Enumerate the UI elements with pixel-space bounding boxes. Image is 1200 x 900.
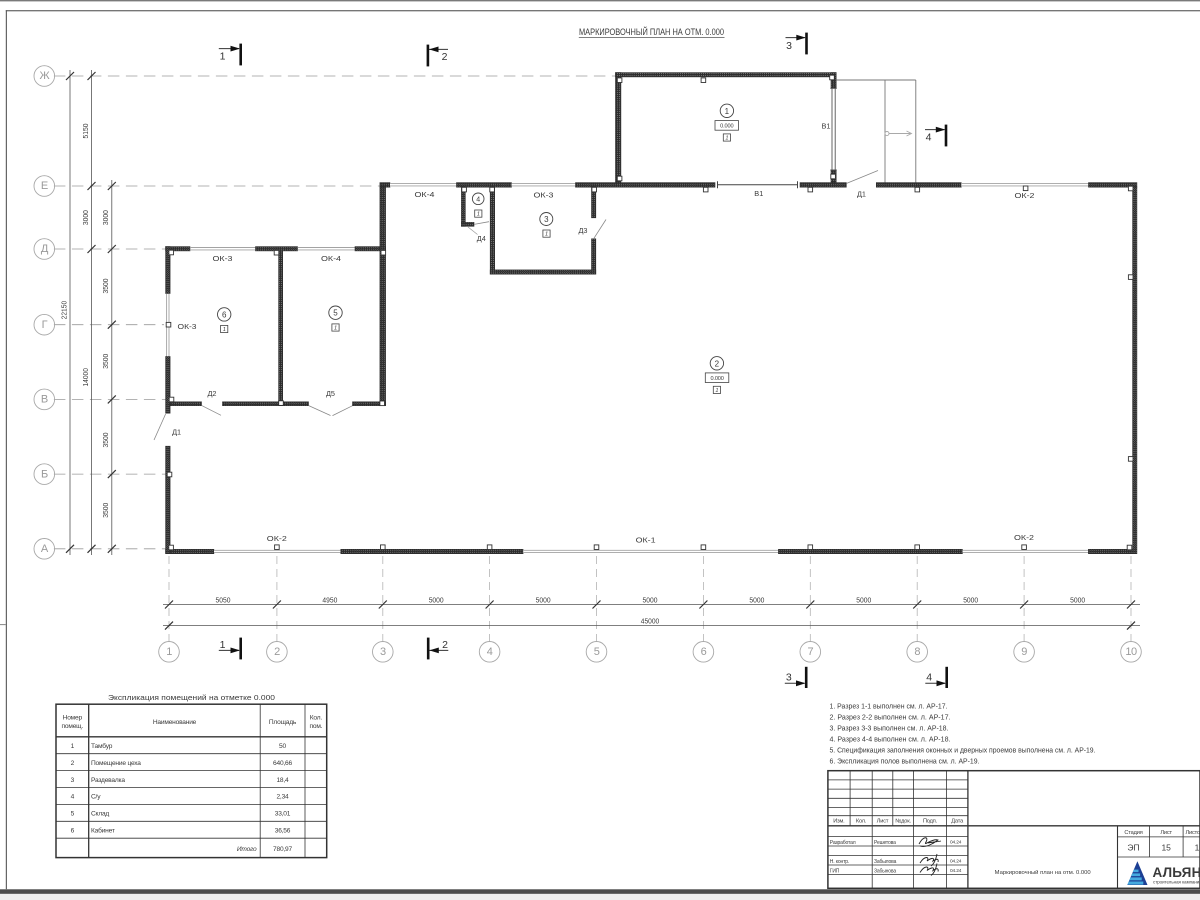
svg-text:Е: Е xyxy=(41,180,48,192)
svg-text:Н. контр.: Н. контр. xyxy=(830,859,849,865)
svg-text:1: 1 xyxy=(725,136,728,142)
svg-text:Раздевалка: Раздевалка xyxy=(91,777,125,784)
svg-text:6. Экспликация полов выполнена: 6. Экспликация полов выполнена см. л. АР… xyxy=(830,758,980,765)
svg-text:2: 2 xyxy=(442,639,448,651)
svg-text:1: 1 xyxy=(220,639,226,651)
svg-text:3500: 3500 xyxy=(103,354,110,369)
svg-text:8: 8 xyxy=(914,646,920,658)
svg-text:Наименование: Наименование xyxy=(153,719,197,726)
svg-text:50: 50 xyxy=(279,743,286,750)
svg-text:3500: 3500 xyxy=(103,278,110,293)
svg-text:1: 1 xyxy=(715,388,718,394)
svg-text:Номер: Номер xyxy=(63,715,83,722)
svg-text:№док.: №док. xyxy=(895,819,911,825)
svg-text:15: 15 xyxy=(1161,842,1171,852)
svg-text:ОК-2: ОК-2 xyxy=(1014,533,1034,542)
svg-text:640,66: 640,66 xyxy=(273,760,293,767)
svg-text:1: 1 xyxy=(725,107,730,116)
svg-text:В: В xyxy=(41,394,48,406)
svg-text:1: 1 xyxy=(334,326,337,332)
svg-text:Д1: Д1 xyxy=(857,190,866,199)
svg-text:5000: 5000 xyxy=(429,597,444,604)
svg-text:АЛЬЯНС: АЛЬЯНС xyxy=(1153,865,1200,880)
svg-text:ЭП: ЭП xyxy=(1127,842,1139,852)
svg-text:Д4: Д4 xyxy=(477,234,486,243)
svg-text:3: 3 xyxy=(786,40,792,52)
svg-text:ОК-2: ОК-2 xyxy=(1015,191,1035,200)
svg-text:В1: В1 xyxy=(822,122,831,131)
svg-text:1: 1 xyxy=(545,232,548,238)
svg-text:Подп.: Подп. xyxy=(923,819,938,825)
svg-text:18,4: 18,4 xyxy=(276,777,289,784)
svg-text:Ж: Ж xyxy=(39,70,49,82)
svg-text:ОК-4: ОК-4 xyxy=(321,254,341,263)
svg-text:9: 9 xyxy=(1021,646,1027,658)
svg-text:Лист: Лист xyxy=(1160,830,1172,836)
svg-text:5000: 5000 xyxy=(963,597,978,604)
svg-text:0.000: 0.000 xyxy=(710,376,723,382)
svg-text:2. Разрез 2-2 выполнен см. л.: 2. Разрез 2-2 выполнен см. л. АР-17. xyxy=(830,714,951,721)
svg-text:0.000: 0.000 xyxy=(720,124,733,130)
svg-text:3000: 3000 xyxy=(83,210,90,225)
svg-text:45000: 45000 xyxy=(641,618,660,625)
svg-text:5: 5 xyxy=(594,646,600,658)
svg-text:ОК-3: ОК-3 xyxy=(178,322,197,331)
svg-text:Д5: Д5 xyxy=(326,389,335,398)
svg-text:4: 4 xyxy=(926,672,932,684)
svg-text:Д2: Д2 xyxy=(208,389,217,398)
svg-text:Стадия: Стадия xyxy=(1124,830,1142,836)
svg-text:3500: 3500 xyxy=(103,503,110,518)
svg-text:Листов: Листов xyxy=(1186,830,1200,836)
svg-text:5000: 5000 xyxy=(536,597,551,604)
svg-text:5000: 5000 xyxy=(1070,597,1085,604)
svg-text:04.24: 04.24 xyxy=(950,840,962,846)
svg-text:780,97: 780,97 xyxy=(273,846,293,853)
svg-text:Склад: Склад xyxy=(91,811,109,818)
svg-text:1: 1 xyxy=(166,646,172,658)
svg-text:22150: 22150 xyxy=(62,301,69,320)
svg-text:1. Разрез 1-1 выполнен см. л.: 1. Разрез 1-1 выполнен см. л. АР-17. xyxy=(830,703,948,710)
svg-text:Забылова: Забылова xyxy=(874,859,897,865)
svg-text:4: 4 xyxy=(476,197,480,204)
svg-text:2,34: 2,34 xyxy=(276,794,289,801)
svg-text:3: 3 xyxy=(544,215,549,224)
svg-text:ОК-3: ОК-3 xyxy=(534,191,554,200)
svg-text:5: 5 xyxy=(71,811,75,818)
svg-text:Маркировочный план на отм. 0.0: Маркировочный план на отм. 0.000 xyxy=(995,869,1091,876)
svg-text:4. Разрез 4-4 выполнен см. л.: 4. Разрез 4-4 выполнен см. л. АР-18. xyxy=(830,736,951,743)
svg-text:Экспликация помещений на отмет: Экспликация помещений на отметке 0.000 xyxy=(108,693,275,702)
svg-text:4: 4 xyxy=(71,794,75,801)
svg-text:Лист: Лист xyxy=(877,819,889,825)
svg-text:Г: Г xyxy=(42,319,48,331)
svg-text:ОК-3: ОК-3 xyxy=(213,254,233,263)
svg-text:МАРКИРОВОЧНЫЙ ПЛАН НА ОТМ. 0.0: МАРКИРОВОЧНЫЙ ПЛАН НА ОТМ. 0.000 xyxy=(579,26,724,37)
svg-text:пом.: пом. xyxy=(309,723,322,730)
svg-text:Забынова: Забынова xyxy=(874,868,896,874)
svg-text:10: 10 xyxy=(1125,646,1137,658)
svg-text:В1: В1 xyxy=(754,189,763,198)
svg-text:3: 3 xyxy=(71,777,75,784)
svg-text:1: 1 xyxy=(477,212,480,218)
svg-text:33,01: 33,01 xyxy=(275,811,291,818)
svg-text:ОК-1: ОК-1 xyxy=(636,535,656,544)
svg-text:Решетова: Решетова xyxy=(874,840,896,846)
svg-text:строительная кампания: строительная кампания xyxy=(1153,880,1200,885)
svg-text:1: 1 xyxy=(223,327,226,333)
svg-text:Изм.: Изм. xyxy=(833,819,845,825)
svg-text:4: 4 xyxy=(926,131,932,143)
svg-text:6: 6 xyxy=(222,310,227,319)
svg-text:7: 7 xyxy=(807,646,813,658)
svg-text:36,56: 36,56 xyxy=(275,828,291,835)
svg-text:А: А xyxy=(41,543,49,555)
svg-text:Д1: Д1 xyxy=(172,428,181,437)
svg-text:14000: 14000 xyxy=(83,368,90,387)
svg-text:04.24: 04.24 xyxy=(950,868,962,874)
svg-text:Дата: Дата xyxy=(951,819,964,825)
svg-text:3000: 3000 xyxy=(103,210,110,225)
svg-text:1: 1 xyxy=(220,50,226,62)
svg-text:5050: 5050 xyxy=(216,597,231,604)
svg-text:1: 1 xyxy=(71,743,75,750)
svg-text:ГИП: ГИП xyxy=(830,868,840,874)
svg-text:4: 4 xyxy=(487,646,493,658)
svg-text:Итого: Итого xyxy=(237,846,257,853)
svg-text:5000: 5000 xyxy=(856,597,871,604)
svg-text:6: 6 xyxy=(701,646,707,658)
svg-text:помещ.: помещ. xyxy=(62,723,84,730)
svg-text:04.24: 04.24 xyxy=(950,859,962,865)
svg-text:4950: 4950 xyxy=(322,597,337,604)
svg-text:ОК-2: ОК-2 xyxy=(267,534,287,543)
svg-text:5150: 5150 xyxy=(83,123,90,138)
svg-text:2: 2 xyxy=(715,359,720,368)
svg-text:5000: 5000 xyxy=(643,597,658,604)
svg-text:3. Разрез 3-3 выполнен см. л.: 3. Разрез 3-3 выполнен см. л. АР-18. xyxy=(830,725,949,732)
svg-text:5000: 5000 xyxy=(749,597,764,604)
svg-text:5: 5 xyxy=(333,309,338,318)
svg-text:Помещение цеха: Помещение цеха xyxy=(91,760,141,767)
svg-text:3500: 3500 xyxy=(103,432,110,447)
svg-text:2: 2 xyxy=(442,51,448,63)
svg-text:Кол.: Кол. xyxy=(856,819,867,825)
svg-text:2: 2 xyxy=(71,760,75,767)
svg-text:5. Спецификация заполнения око: 5. Спецификация заполнения оконных и две… xyxy=(830,747,1096,754)
svg-text:1: 1 xyxy=(1195,842,1200,852)
svg-text:Д3: Д3 xyxy=(579,226,588,235)
svg-text:Б: Б xyxy=(41,468,48,480)
svg-text:6: 6 xyxy=(71,828,75,835)
svg-text:3: 3 xyxy=(786,672,792,684)
svg-text:Кабинет: Кабинет xyxy=(91,827,115,835)
svg-text:ОК-4: ОК-4 xyxy=(415,190,435,199)
svg-text:Кол.: Кол. xyxy=(310,715,323,722)
svg-text:С/у: С/у xyxy=(91,794,101,801)
svg-text:Д: Д xyxy=(41,243,49,255)
svg-text:2: 2 xyxy=(274,646,280,658)
svg-text:Площадь: Площадь xyxy=(269,719,297,726)
svg-text:3: 3 xyxy=(380,646,386,658)
svg-text:Тамбур: Тамбур xyxy=(91,742,113,750)
svg-text:Разработал: Разработал xyxy=(830,840,856,846)
